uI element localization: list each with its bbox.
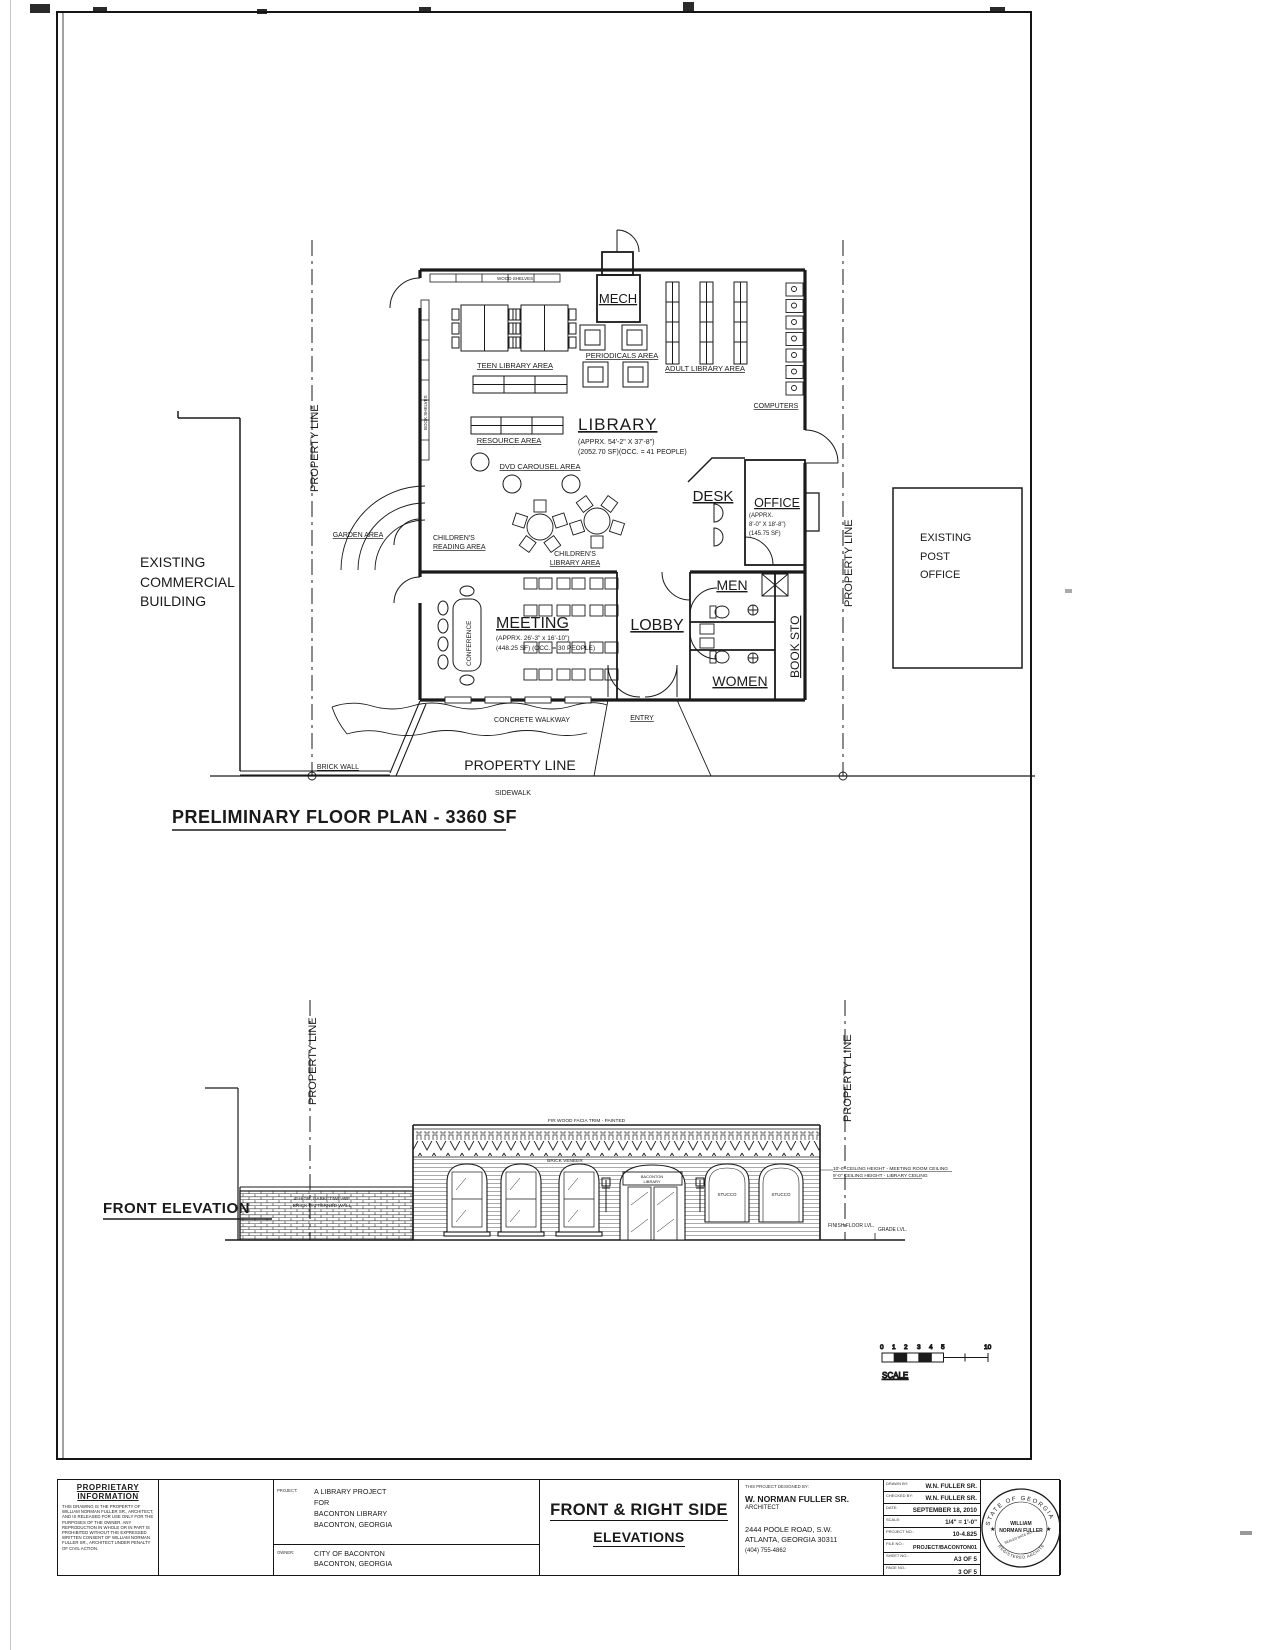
office-dim-2: 8'-0" X 18'-8") — [749, 522, 786, 528]
seal-star-right: ★ — [1046, 1526, 1051, 1533]
project-line: BACONTON LIBRARY — [314, 1508, 392, 1519]
men-label: MEN — [716, 577, 747, 593]
architect-name: W. NORMAN FULLER SR. — [745, 1494, 877, 1504]
row-value: W.N. FULLER SR. — [925, 1483, 977, 1490]
designed-by-label: THIS PROJECT DESIGNED BY: — [745, 1484, 877, 1489]
lobby-label: LOBBY — [630, 617, 684, 634]
row-label: FILE NO.: — [886, 1541, 904, 1546]
elev-property-line-left: PROPERTY LINE — [307, 1017, 319, 1105]
concrete-walkway-label: CONCRETE WALKWAY — [494, 717, 570, 724]
sheet-title-cell: FRONT & RIGHT SIDE ELEVATIONS — [540, 1480, 739, 1575]
brick-veneer-note: BRICK VENEER — [547, 1158, 583, 1164]
sheet-title-line-1: FRONT & RIGHT SIDE — [550, 1501, 728, 1521]
stucco-label-1: STUCCO — [718, 1192, 737, 1197]
row-label: SCALE: — [886, 1517, 900, 1522]
existing-commercial-2: COMMERCIAL — [140, 574, 235, 590]
meeting-occ: (448.25 SF) (OCC. = 30 PEOPLE) — [496, 645, 595, 652]
office-dim-3: (145.75 SF) — [749, 531, 781, 537]
info-row: SHEET NO.: A3 OF 5 — [884, 1553, 980, 1565]
childrens-library-2: LIBRARY AREA — [550, 560, 601, 567]
drawing-canvas: WOOD SHELVES BOOK SHELVES MECH TEEN LIBR… — [0, 0, 1275, 1650]
sidewalk-label: SIDEWALK — [495, 790, 531, 797]
info-row: CHECKED BY: W.N. FULLER SR. — [884, 1492, 980, 1504]
elevation-title: FRONT ELEVATION — [103, 1200, 250, 1217]
library-dim: (APPRX. 54'-2" X 37'-8") — [578, 439, 655, 446]
architect-title: ARCHITECT — [745, 1505, 877, 1511]
scale-num-1: 1 — [892, 1344, 896, 1351]
info-row: FILE NO.: PROJECT/BACONTON01 — [884, 1540, 980, 1552]
row-value: 3 OF 5 — [958, 1569, 977, 1576]
childrens-tables — [512, 496, 624, 553]
info-row: SCALE: 1/4" = 1'-0" — [884, 1516, 980, 1528]
floor-plan-title: PRELIMINARY FLOOR PLAN - 3360 SF — [172, 807, 517, 827]
desk-label: DESK — [693, 488, 734, 505]
elevation-low-wall — [240, 1187, 413, 1240]
dvd-carousels — [471, 453, 580, 493]
women-label: WOMEN — [712, 673, 767, 689]
row-value: PROJECT/BACONTON01 — [913, 1545, 977, 1551]
existing-post-1: EXISTING — [920, 532, 971, 544]
library-sign-2: LIBRARY — [643, 1179, 660, 1184]
signature-cell — [159, 1480, 274, 1575]
proprietary-cell: PROPRIETARY INFORMATION THIS DRAWING IS … — [58, 1480, 159, 1575]
architect-phone: (404) 755-4862 — [745, 1548, 877, 1554]
info-row: DATE: SEPTEMBER 18, 2010 — [884, 1504, 980, 1516]
childrens-reading-arcs — [341, 486, 425, 570]
sheet-frame — [57, 12, 1031, 1459]
stucco-label-2: STUCCO — [772, 1192, 791, 1197]
elev-property-line-right: PROPERTY LINE — [842, 1034, 854, 1122]
title-block: PROPRIETARY INFORMATION THIS DRAWING IS … — [57, 1479, 1060, 1576]
brick-wall-label: BRICK WALL — [317, 764, 359, 771]
existing-commercial-1: EXISTING — [140, 554, 205, 570]
project-line: BACONTON, GEORGIA — [314, 1519, 392, 1530]
door-arcs — [390, 278, 838, 697]
info-row: PROJECT NO.: 10-4.825 — [884, 1528, 980, 1540]
owner-line: BACONTON, GEORGIA — [314, 1559, 392, 1569]
teen-label: TEEN LIBRARY AREA — [477, 361, 553, 370]
project-line: FOR — [314, 1497, 392, 1508]
drawing-info-cell: DRAWN BY: W.N. FULLER SR. CHECKED BY: W.… — [884, 1480, 981, 1575]
property-line-bottom-label: PROPERTY LINE — [464, 757, 576, 773]
proprietary-body: THIS DRAWING IS THE PROPERTY OF WILLIAM … — [62, 1504, 154, 1551]
floor-plan — [178, 230, 1035, 780]
library-label: LIBRARY — [578, 415, 657, 434]
scale-num-4: 4 — [929, 1344, 933, 1351]
existing-commercial-3: BUILDING — [140, 593, 206, 609]
facia-note: FIR WOOD FACIA TRIM - PAINTED — [548, 1118, 626, 1124]
owner-lines: CITY OF BACONTON BACONTON, GEORGIA — [314, 1549, 392, 1569]
row-value: W.N. FULLER SR. — [925, 1495, 977, 1502]
existing-commercial-outline — [178, 411, 240, 771]
row-value: SEPTEMBER 18, 2010 — [913, 1507, 977, 1514]
computers-label: COMPUTERS — [754, 403, 799, 410]
row-label: DATE: — [886, 1505, 897, 1510]
scale-num-0: 0 — [880, 1344, 884, 1351]
adult-label: ADULT LIBRARY AREA — [665, 364, 745, 373]
scale-bar: 0 1 2 3 4 5 10 SCALE — [880, 1344, 992, 1380]
row-value: A3 OF 5 — [954, 1556, 977, 1563]
scale-num-3: 3 — [917, 1344, 921, 1351]
property-line-right-label: PROPERTY LINE — [843, 519, 855, 607]
scale-label: SCALE — [882, 1371, 908, 1380]
office-dim-1: (APPRX. — [749, 513, 773, 519]
garden-label: GARDEN AREA — [333, 532, 384, 539]
existing-post-3: OFFICE — [920, 569, 960, 581]
childrens-library-1: CHILDREN'S — [554, 551, 596, 558]
resource-shelves — [471, 376, 567, 434]
info-row: DRAWN BY: W.N. FULLER SR. — [884, 1480, 980, 1492]
resource-label: RESOURCE AREA — [477, 436, 542, 445]
meeting-label: MEETING — [496, 615, 569, 632]
row-value: 1/4" = 1'-0" — [945, 1519, 977, 1526]
seal-name-2: NORMAN FULLER — [999, 1528, 1043, 1534]
elevation-windows — [444, 1164, 602, 1236]
dvd-label: DVD CAROUSEL AREA — [500, 462, 581, 471]
meeting-dim: (APPRX. 26'-3" x 16'-10") — [496, 635, 570, 642]
project-owner-cell: PROJECT: A LIBRARY PROJECT FOR BACONTON … — [274, 1480, 540, 1575]
finish-floor-label: FINISH FLOOR LVL. — [828, 1223, 874, 1229]
conference-label: CONFERENCE — [466, 620, 473, 666]
project-owner-divider — [274, 1544, 539, 1545]
computer-carrels — [786, 283, 803, 395]
project-label: PROJECT: — [277, 1488, 297, 1493]
property-line-left-label: PROPERTY LINE — [309, 404, 321, 492]
conference-table — [438, 586, 481, 685]
wall-note-2: BRICK PATTERNED WALL — [293, 1203, 352, 1209]
seal-star-left: ★ — [990, 1526, 995, 1533]
scale-num-5: 5 — [941, 1344, 945, 1351]
wall-note-1: 4' HIGH, BASKET WEAVE — [294, 1196, 351, 1202]
entry-label: ENTRY — [630, 715, 654, 722]
row-label: CHECKED BY: — [886, 1493, 913, 1498]
info-row: PAGE NO.: 3 OF 5 — [884, 1565, 980, 1577]
mech-room — [597, 230, 640, 322]
adult-shelves — [666, 282, 747, 364]
scale-num-2: 2 — [904, 1344, 908, 1351]
book-shelves-label: BOOK SHELVES — [423, 395, 428, 430]
architect-address: 2444 POOLE ROAD, S.W. ATLANTA, GEORGIA 3… — [745, 1525, 877, 1544]
row-label: PROJECT NO.: — [886, 1529, 914, 1534]
scale-num-10: 10 — [984, 1344, 992, 1351]
sheet-title-line-2: ELEVATIONS — [593, 1529, 684, 1547]
existing-post-2: POST — [920, 551, 950, 563]
seal-cell: STATE OF GEORGIA ★ ★ WILLIAM NORMAN FULL… — [981, 1480, 1061, 1575]
seal-name-1: WILLIAM — [1010, 1521, 1031, 1527]
book-sto-label: BOOK STO — [788, 616, 802, 678]
row-value: 10-4.825 — [953, 1531, 977, 1538]
row-label: DRAWN BY: — [886, 1481, 908, 1486]
owner-label: OWNER: — [277, 1550, 294, 1555]
restroom-fixtures — [700, 605, 758, 663]
grade-label: GRADE LVL. — [878, 1227, 907, 1233]
owner-line: CITY OF BACONTON — [314, 1549, 392, 1559]
proprietary-title-1: PROPRIETARY — [62, 1483, 154, 1492]
row-label: SHEET NO.: — [886, 1553, 909, 1558]
architect-seal: STATE OF GEORGIA ★ ★ WILLIAM NORMAN FULL… — [981, 1480, 1061, 1575]
desk-counter — [714, 504, 723, 546]
project-line: A LIBRARY PROJECT — [314, 1486, 392, 1497]
mech-label: MECH — [599, 291, 637, 306]
row-label: PAGE NO.: — [886, 1565, 906, 1570]
ceiling-note-2: 9'-0" CEILING HEIGHT - LIBRARY CEILING — [833, 1173, 928, 1179]
architect-cell: THIS PROJECT DESIGNED BY: W. NORMAN FULL… — [739, 1480, 884, 1575]
project-lines: A LIBRARY PROJECT FOR BACONTON LIBRARY B… — [314, 1486, 392, 1530]
office-label: OFFICE — [754, 496, 800, 510]
teen-tables — [452, 305, 576, 351]
wood-shelves-label: WOOD SHELVES — [497, 276, 533, 281]
childrens-reading-2: READING AREA — [433, 544, 486, 551]
proprietary-title-2: INFORMATION — [62, 1492, 154, 1501]
address-line: ATLANTA, GEORGIA 30311 — [745, 1535, 877, 1545]
periodicals-label: PERIODICALS AREA — [586, 351, 659, 360]
drawing-sheet: WOOD SHELVES BOOK SHELVES MECH TEEN LIBR… — [0, 0, 1275, 1650]
library-occ: (2052.70 SF)(OCC. = 41 PEOPLE) — [578, 449, 687, 456]
floor-plan-labels: WOOD SHELVES BOOK SHELVES MECH TEEN LIBR… — [140, 276, 971, 830]
childrens-reading-1: CHILDREN'S — [433, 535, 475, 542]
address-line: 2444 POOLE ROAD, S.W. — [745, 1525, 877, 1535]
ceiling-note-1: 10'-0" CEILING HEIGHT - MEETING ROOM CEI… — [833, 1166, 948, 1172]
